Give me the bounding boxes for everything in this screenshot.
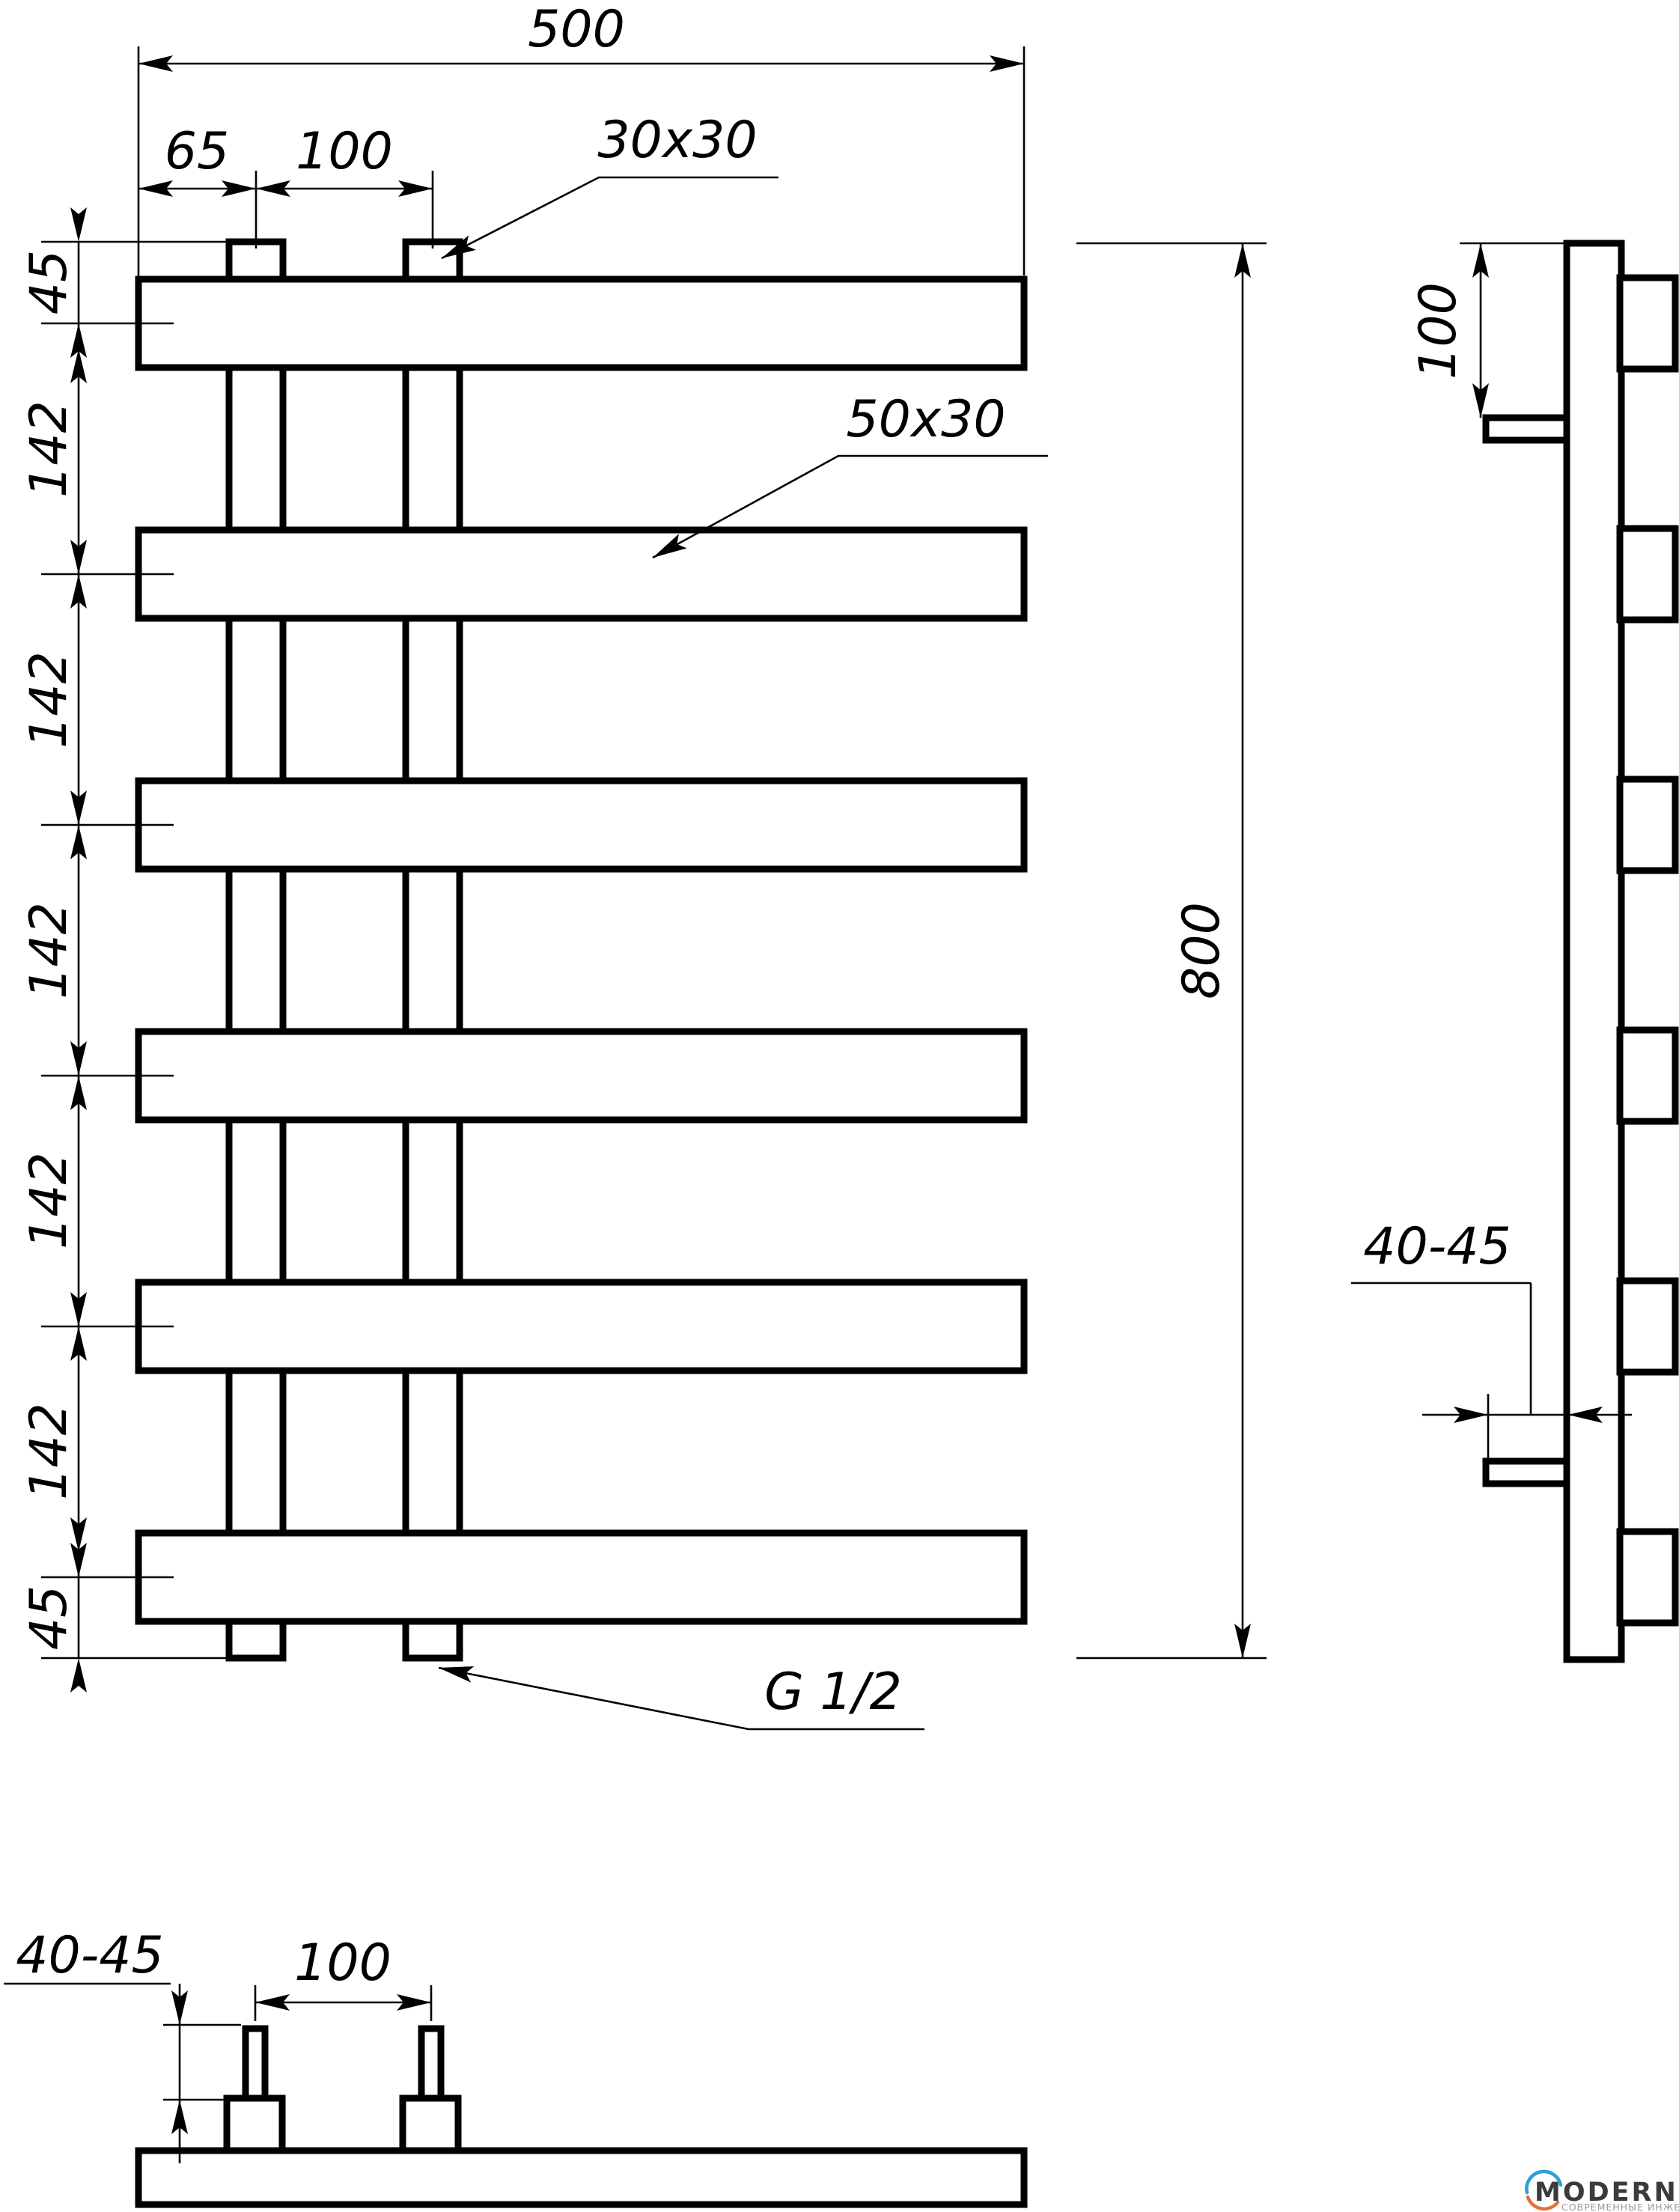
front-view bbox=[138, 242, 1024, 1658]
bottom-dim-40-45: 40-45 bbox=[4, 1926, 241, 2163]
front-bar-4 bbox=[138, 1032, 1024, 1120]
bottom-view bbox=[138, 2029, 1024, 2205]
front-riser-left bbox=[229, 242, 283, 1658]
label-50x30: 50x30 bbox=[846, 390, 1005, 449]
dim-label-45-bottom: 45 bbox=[19, 1585, 79, 1651]
side-bracket-bottom bbox=[1486, 1461, 1570, 1484]
dim-label-40-45-bottom: 40-45 bbox=[16, 1926, 164, 1985]
front-bar-6 bbox=[138, 1533, 1024, 1621]
dim-label-142-1: 142 bbox=[19, 400, 79, 498]
dim-label-500: 500 bbox=[528, 0, 625, 59]
dim-label-800: 800 bbox=[1172, 902, 1231, 999]
bottom-riser-right bbox=[403, 2098, 458, 2152]
dim-label-65: 65 bbox=[165, 122, 230, 181]
side-rung-3 bbox=[1620, 779, 1675, 871]
dim-label-45-top: 45 bbox=[19, 250, 79, 315]
technical-drawing: 500 65 100 30x30 50x30 G 1/2 bbox=[0, 0, 1679, 2212]
side-riser-column bbox=[1567, 243, 1621, 1660]
side-rung-1 bbox=[1620, 278, 1675, 369]
side-rungs bbox=[1620, 278, 1675, 1623]
dim-label-100-front: 100 bbox=[296, 122, 393, 181]
side-dim-100: 100 bbox=[1409, 243, 1568, 418]
bottom-pipe-right bbox=[421, 2029, 441, 2103]
side-rung-5 bbox=[1620, 1281, 1675, 1372]
front-bar-3 bbox=[138, 781, 1024, 869]
front-riser-right bbox=[406, 242, 460, 1658]
label-g12: G 1/2 bbox=[764, 1663, 902, 1722]
dim-riser-offsets: 65 100 bbox=[138, 122, 433, 249]
side-rung-2 bbox=[1620, 528, 1675, 620]
front-bar-1 bbox=[138, 279, 1024, 368]
dim-label-142-5: 142 bbox=[19, 1403, 79, 1500]
bottom-dim-100: 100 bbox=[255, 1934, 431, 2021]
logo-tagline-text: СОВРЕМЕННЫЕ ИНЖЕНЕРНЫЕ СИСТЕМЫ bbox=[1561, 2202, 1679, 2212]
front-bar-2 bbox=[138, 530, 1024, 618]
dim-label-40-45-side: 40-45 bbox=[1363, 1217, 1511, 1276]
bottom-bar bbox=[138, 2151, 1024, 2205]
dim-label-100-side: 100 bbox=[1409, 282, 1468, 380]
dim-label-100-bottom: 100 bbox=[294, 1934, 391, 1993]
dim-label-142-2: 142 bbox=[19, 651, 79, 749]
dim-chain-left: 45 142 142 142 142 142 45 bbox=[19, 207, 229, 1692]
bottom-pipe-left bbox=[246, 2029, 265, 2103]
side-bracket-top bbox=[1486, 418, 1570, 440]
front-bar-5 bbox=[138, 1282, 1024, 1371]
dim-label-142-4: 142 bbox=[19, 1152, 79, 1249]
front-risers bbox=[229, 242, 460, 1658]
label-thread: G 1/2 bbox=[437, 1660, 924, 1729]
dim-label-142-3: 142 bbox=[19, 902, 79, 999]
side-rung-4 bbox=[1620, 1030, 1675, 1121]
dim-height-800: 800 bbox=[1076, 243, 1267, 1658]
side-view bbox=[1486, 243, 1675, 1660]
side-rung-6 bbox=[1620, 1532, 1675, 1623]
logo: MODERNSYS СОВРЕМЕННЫЕ ИНЖЕНЕРНЫЕ СИСТЕМЫ bbox=[1526, 2172, 1679, 2212]
bottom-riser-left bbox=[227, 2098, 282, 2152]
label-30x30: 30x30 bbox=[597, 111, 757, 170]
drawing-sheet: 500 65 100 30x30 50x30 G 1/2 bbox=[0, 0, 1679, 2212]
label-riser-profile: 30x30 bbox=[438, 111, 778, 266]
